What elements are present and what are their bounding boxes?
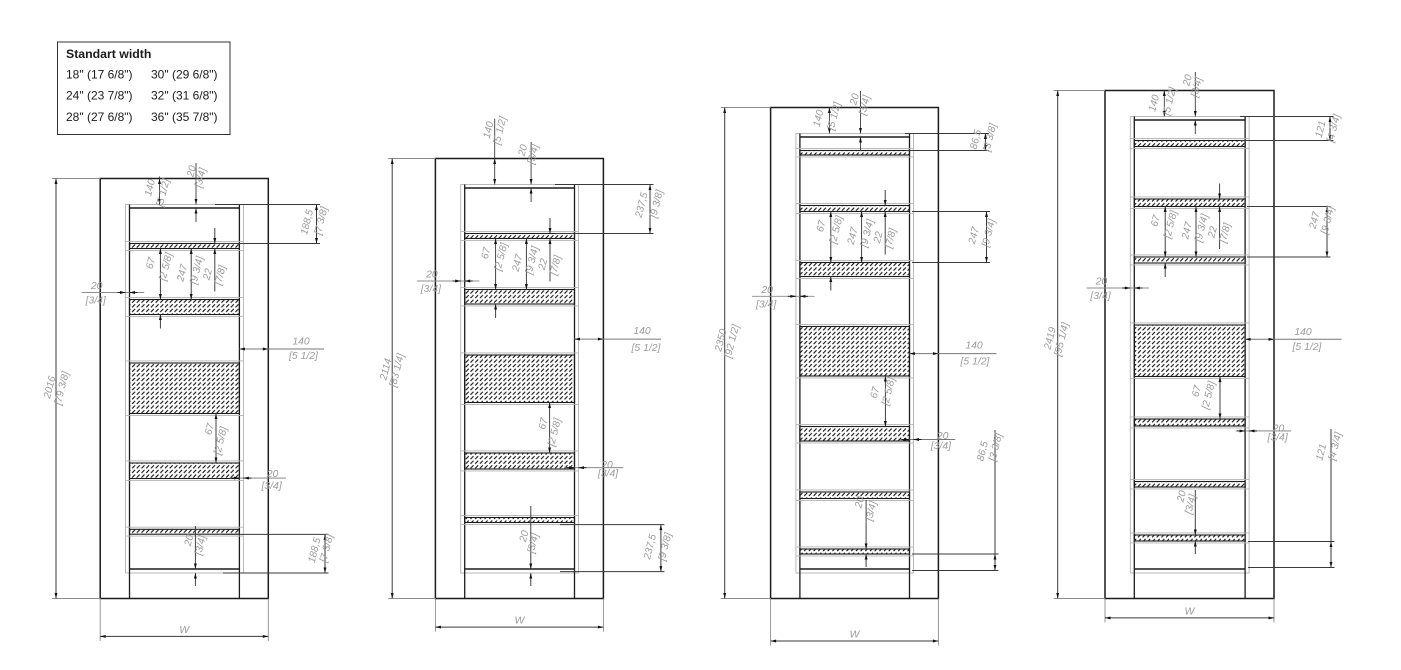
svg-text:20: 20 [425,270,438,281]
svg-text:28" (27 6/8"): 28" (27 6/8") [66,110,133,124]
svg-text:[5 1/2]: [5 1/2] [960,357,991,368]
svg-text:140: 140 [633,326,651,337]
svg-text:[3/4]: [3/4] [755,299,777,310]
svg-text:Standart width: Standart width [66,47,151,61]
svg-text:20: 20 [266,469,279,480]
svg-text:[3/4]: [3/4] [420,284,442,295]
svg-text:24" (23 7/8"): 24" (23 7/8") [66,89,133,103]
svg-text:140: 140 [1294,327,1312,338]
svg-text:20: 20 [760,285,773,296]
svg-text:[5 1/2]: [5 1/2] [631,343,662,354]
svg-text:30" (29 6/8"): 30" (29 6/8") [151,68,218,82]
svg-text:20: 20 [90,281,103,292]
svg-text:[3/4]: [3/4] [1089,291,1111,302]
svg-text:[3/4]: [3/4] [597,469,619,480]
svg-text:W: W [514,615,525,627]
svg-text:[3/4]: [3/4] [1266,433,1288,444]
svg-text:36" (35 7/8"): 36" (35 7/8") [151,110,218,124]
svg-text:[5 1/2]: [5 1/2] [1292,342,1323,353]
svg-text:[3/4]: [3/4] [930,441,952,452]
svg-text:W: W [850,629,861,641]
svg-text:W: W [179,624,190,636]
svg-text:W: W [1185,605,1196,617]
svg-text:18" (17 6/8"): 18" (17 6/8") [66,68,133,82]
svg-text:32" (31 6/8"): 32" (31 6/8") [151,89,218,103]
svg-text:140: 140 [965,341,983,352]
svg-text:[5 1/2]: [5 1/2] [288,351,319,362]
svg-text:[3/4]: [3/4] [260,481,282,492]
svg-text:20: 20 [1095,277,1108,288]
svg-text:140: 140 [292,337,310,348]
svg-text:[3/4]: [3/4] [85,296,107,307]
